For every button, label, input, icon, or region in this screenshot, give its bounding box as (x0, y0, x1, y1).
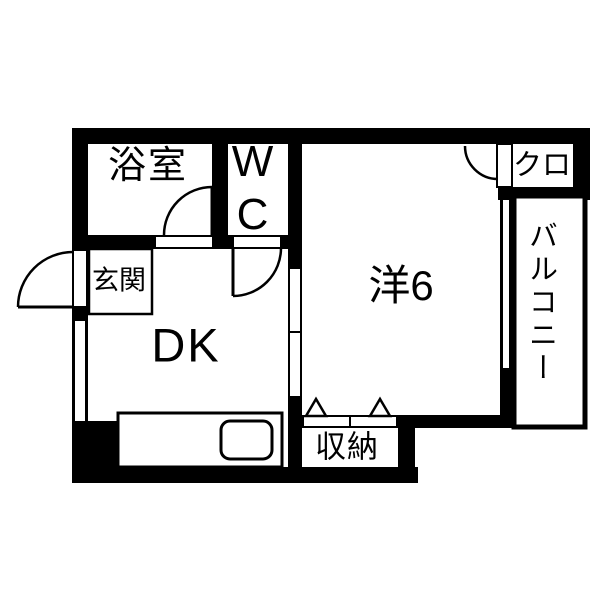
entrance-door-arc (18, 252, 73, 307)
floor-plan: 浴室 WC 玄関 DK 洋6 クロ バルコニー 収納 (0, 0, 600, 600)
storage-door-panel-1 (303, 416, 350, 427)
wall-left-pier (72, 307, 88, 321)
toilet-label: WC (230, 137, 274, 243)
closet-door-arc (465, 146, 498, 179)
wall-top (72, 128, 590, 144)
wall-bath-wc-divider (212, 142, 228, 237)
entrance-label: 玄関 (92, 268, 146, 295)
dining-kitchen-label: DK (151, 322, 220, 369)
wall-left-upper (72, 128, 88, 250)
balcony-label: バルコニー (526, 221, 555, 386)
closet-door-leaf (497, 144, 512, 187)
western-room-label: 洋6 (368, 265, 433, 307)
window-dk-west-inner-line (85, 320, 88, 421)
storage-door-triangle-1 (306, 399, 326, 416)
wall-center-lower (288, 397, 302, 483)
wall-storage-right (398, 415, 415, 483)
bathroom-label: 浴室 (108, 147, 188, 185)
window-dk-west-outer-line (72, 320, 75, 421)
wall-western-south (398, 415, 512, 428)
window-balcony-outer-line (500, 200, 503, 368)
bathroom-door-arc (164, 187, 212, 235)
window-balcony-inner-line (509, 200, 512, 368)
storage-label: 収納 (315, 432, 379, 463)
closet-label: クロ (513, 152, 571, 181)
storage-door-panel-2 (350, 416, 397, 427)
wall-center-upper (288, 142, 302, 268)
kitchen-sink (221, 421, 272, 459)
wall-balcony-pier (500, 368, 512, 428)
storage-door-triangle-2 (370, 399, 390, 416)
wall-bottom (72, 467, 418, 483)
bathroom-door-threshold (155, 236, 213, 248)
floor-plan-drawing (0, 0, 600, 600)
sliding-door-dk-panel-1 (289, 268, 301, 332)
wc-door-arc (233, 248, 281, 296)
wall-hall-north-a (72, 235, 157, 249)
entrance-door-threshold (73, 250, 87, 307)
sliding-door-dk-panel-2 (289, 332, 301, 397)
